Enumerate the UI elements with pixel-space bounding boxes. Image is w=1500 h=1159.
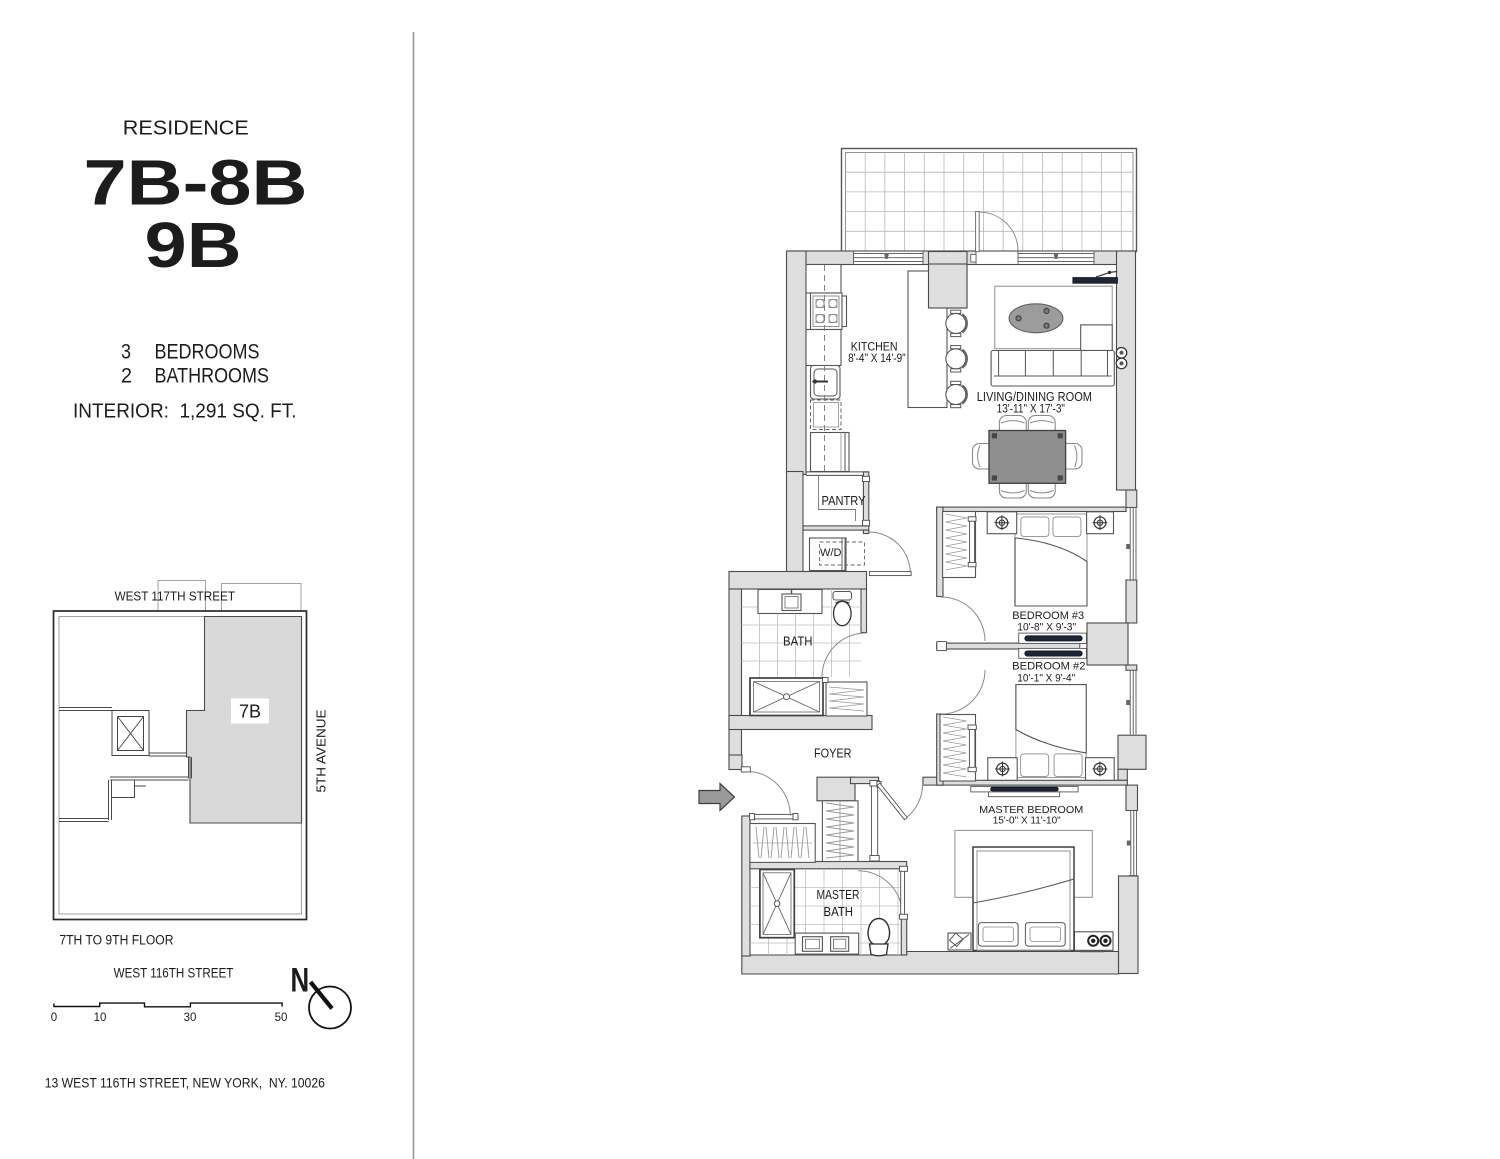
svg-text:9B: 9B <box>145 209 242 281</box>
svg-text:13 WEST 116TH STREET, NEW YORK: 13 WEST 116TH STREET, NEW YORK, NY. 1002… <box>45 1075 325 1091</box>
svg-text:KITCHEN: KITCHEN <box>851 340 898 354</box>
svg-text:BATHROOMS: BATHROOMS <box>155 365 270 388</box>
svg-text:5TH AVENUE: 5TH AVENUE <box>315 710 329 793</box>
svg-text:3: 3 <box>121 341 131 364</box>
svg-text:PANTRY: PANTRY <box>822 494 867 508</box>
svg-text:BEDROOM #2: BEDROOM #2 <box>1012 661 1085 673</box>
svg-text:BEDROOMS: BEDROOMS <box>155 341 260 364</box>
svg-text:WEST 116TH STREET: WEST 116TH STREET <box>114 966 234 981</box>
svg-text:INTERIOR: 1,291 SQ. FT.: INTERIOR: 1,291 SQ. FT. <box>73 400 297 423</box>
svg-text:7B-8B: 7B-8B <box>84 147 308 219</box>
svg-text:MASTER: MASTER <box>817 888 860 902</box>
svg-text:10'-1" X 9'-4": 10'-1" X 9'-4" <box>1017 672 1075 684</box>
svg-text:30: 30 <box>184 1012 197 1024</box>
svg-text:8'-4" X 14'-9": 8'-4" X 14'-9" <box>848 353 906 365</box>
svg-text:7TH TO 9TH FLOOR: 7TH TO 9TH FLOOR <box>59 933 173 948</box>
svg-text:FOYER: FOYER <box>814 747 852 761</box>
svg-text:10: 10 <box>94 1012 107 1024</box>
svg-text:0: 0 <box>51 1012 57 1024</box>
svg-text:2: 2 <box>121 365 132 388</box>
svg-text:RESIDENCE: RESIDENCE <box>123 118 249 140</box>
svg-text:50: 50 <box>275 1012 288 1024</box>
svg-text:7B: 7B <box>239 702 261 722</box>
svg-text:13'-11" X 17'-3": 13'-11" X 17'-3" <box>997 402 1065 416</box>
svg-text:BEDROOM #3: BEDROOM #3 <box>1012 610 1084 622</box>
svg-text:BATH: BATH <box>783 635 813 649</box>
svg-text:10'-8" X 9'-3": 10'-8" X 9'-3" <box>1017 622 1076 634</box>
svg-text:W/D: W/D <box>820 547 842 559</box>
svg-text:15'-0" X 11'-10": 15'-0" X 11'-10" <box>993 815 1061 827</box>
svg-text:BATH: BATH <box>824 905 854 919</box>
svg-text:WEST 117TH STREET: WEST 117TH STREET <box>115 589 235 604</box>
svg-text:N: N <box>291 962 310 999</box>
